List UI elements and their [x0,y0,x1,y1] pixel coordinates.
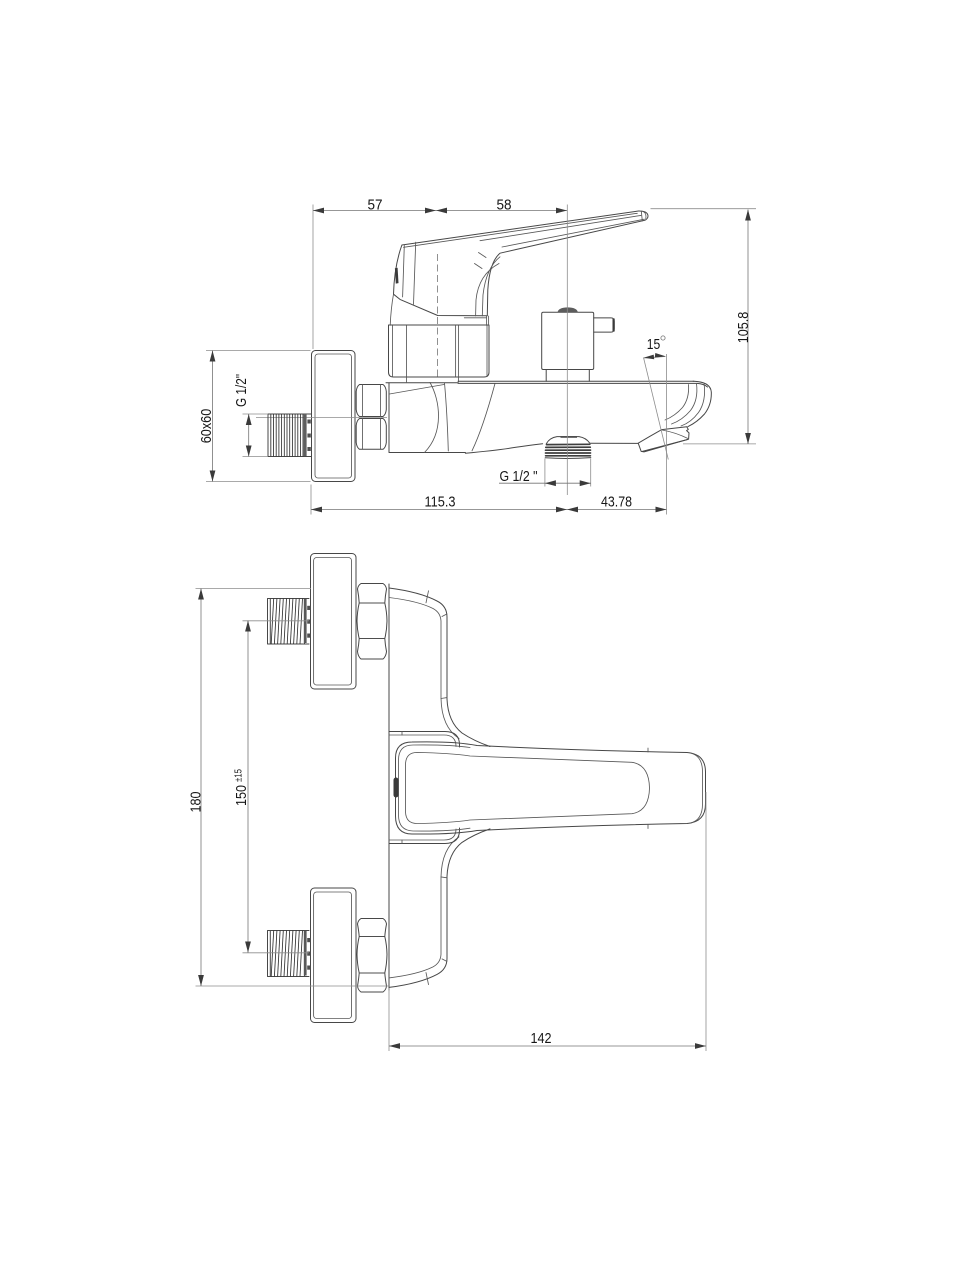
svg-text:G 1/2": G 1/2" [233,374,250,407]
svg-text:105.8: 105.8 [735,312,752,344]
svg-text:60x60: 60x60 [198,409,215,444]
svg-text:180: 180 [187,792,204,813]
svg-text:15: 15 [647,336,661,353]
svg-text:43.78: 43.78 [601,494,632,511]
svg-text:58: 58 [497,197,512,214]
svg-text:±15: ±15 [234,769,245,782]
svg-text:115.3: 115.3 [425,494,456,511]
svg-text:G 1/2 ": G 1/2 " [500,468,538,485]
svg-text:142: 142 [531,1030,552,1047]
svg-text:150: 150 [233,785,250,806]
svg-text:57: 57 [368,197,383,214]
